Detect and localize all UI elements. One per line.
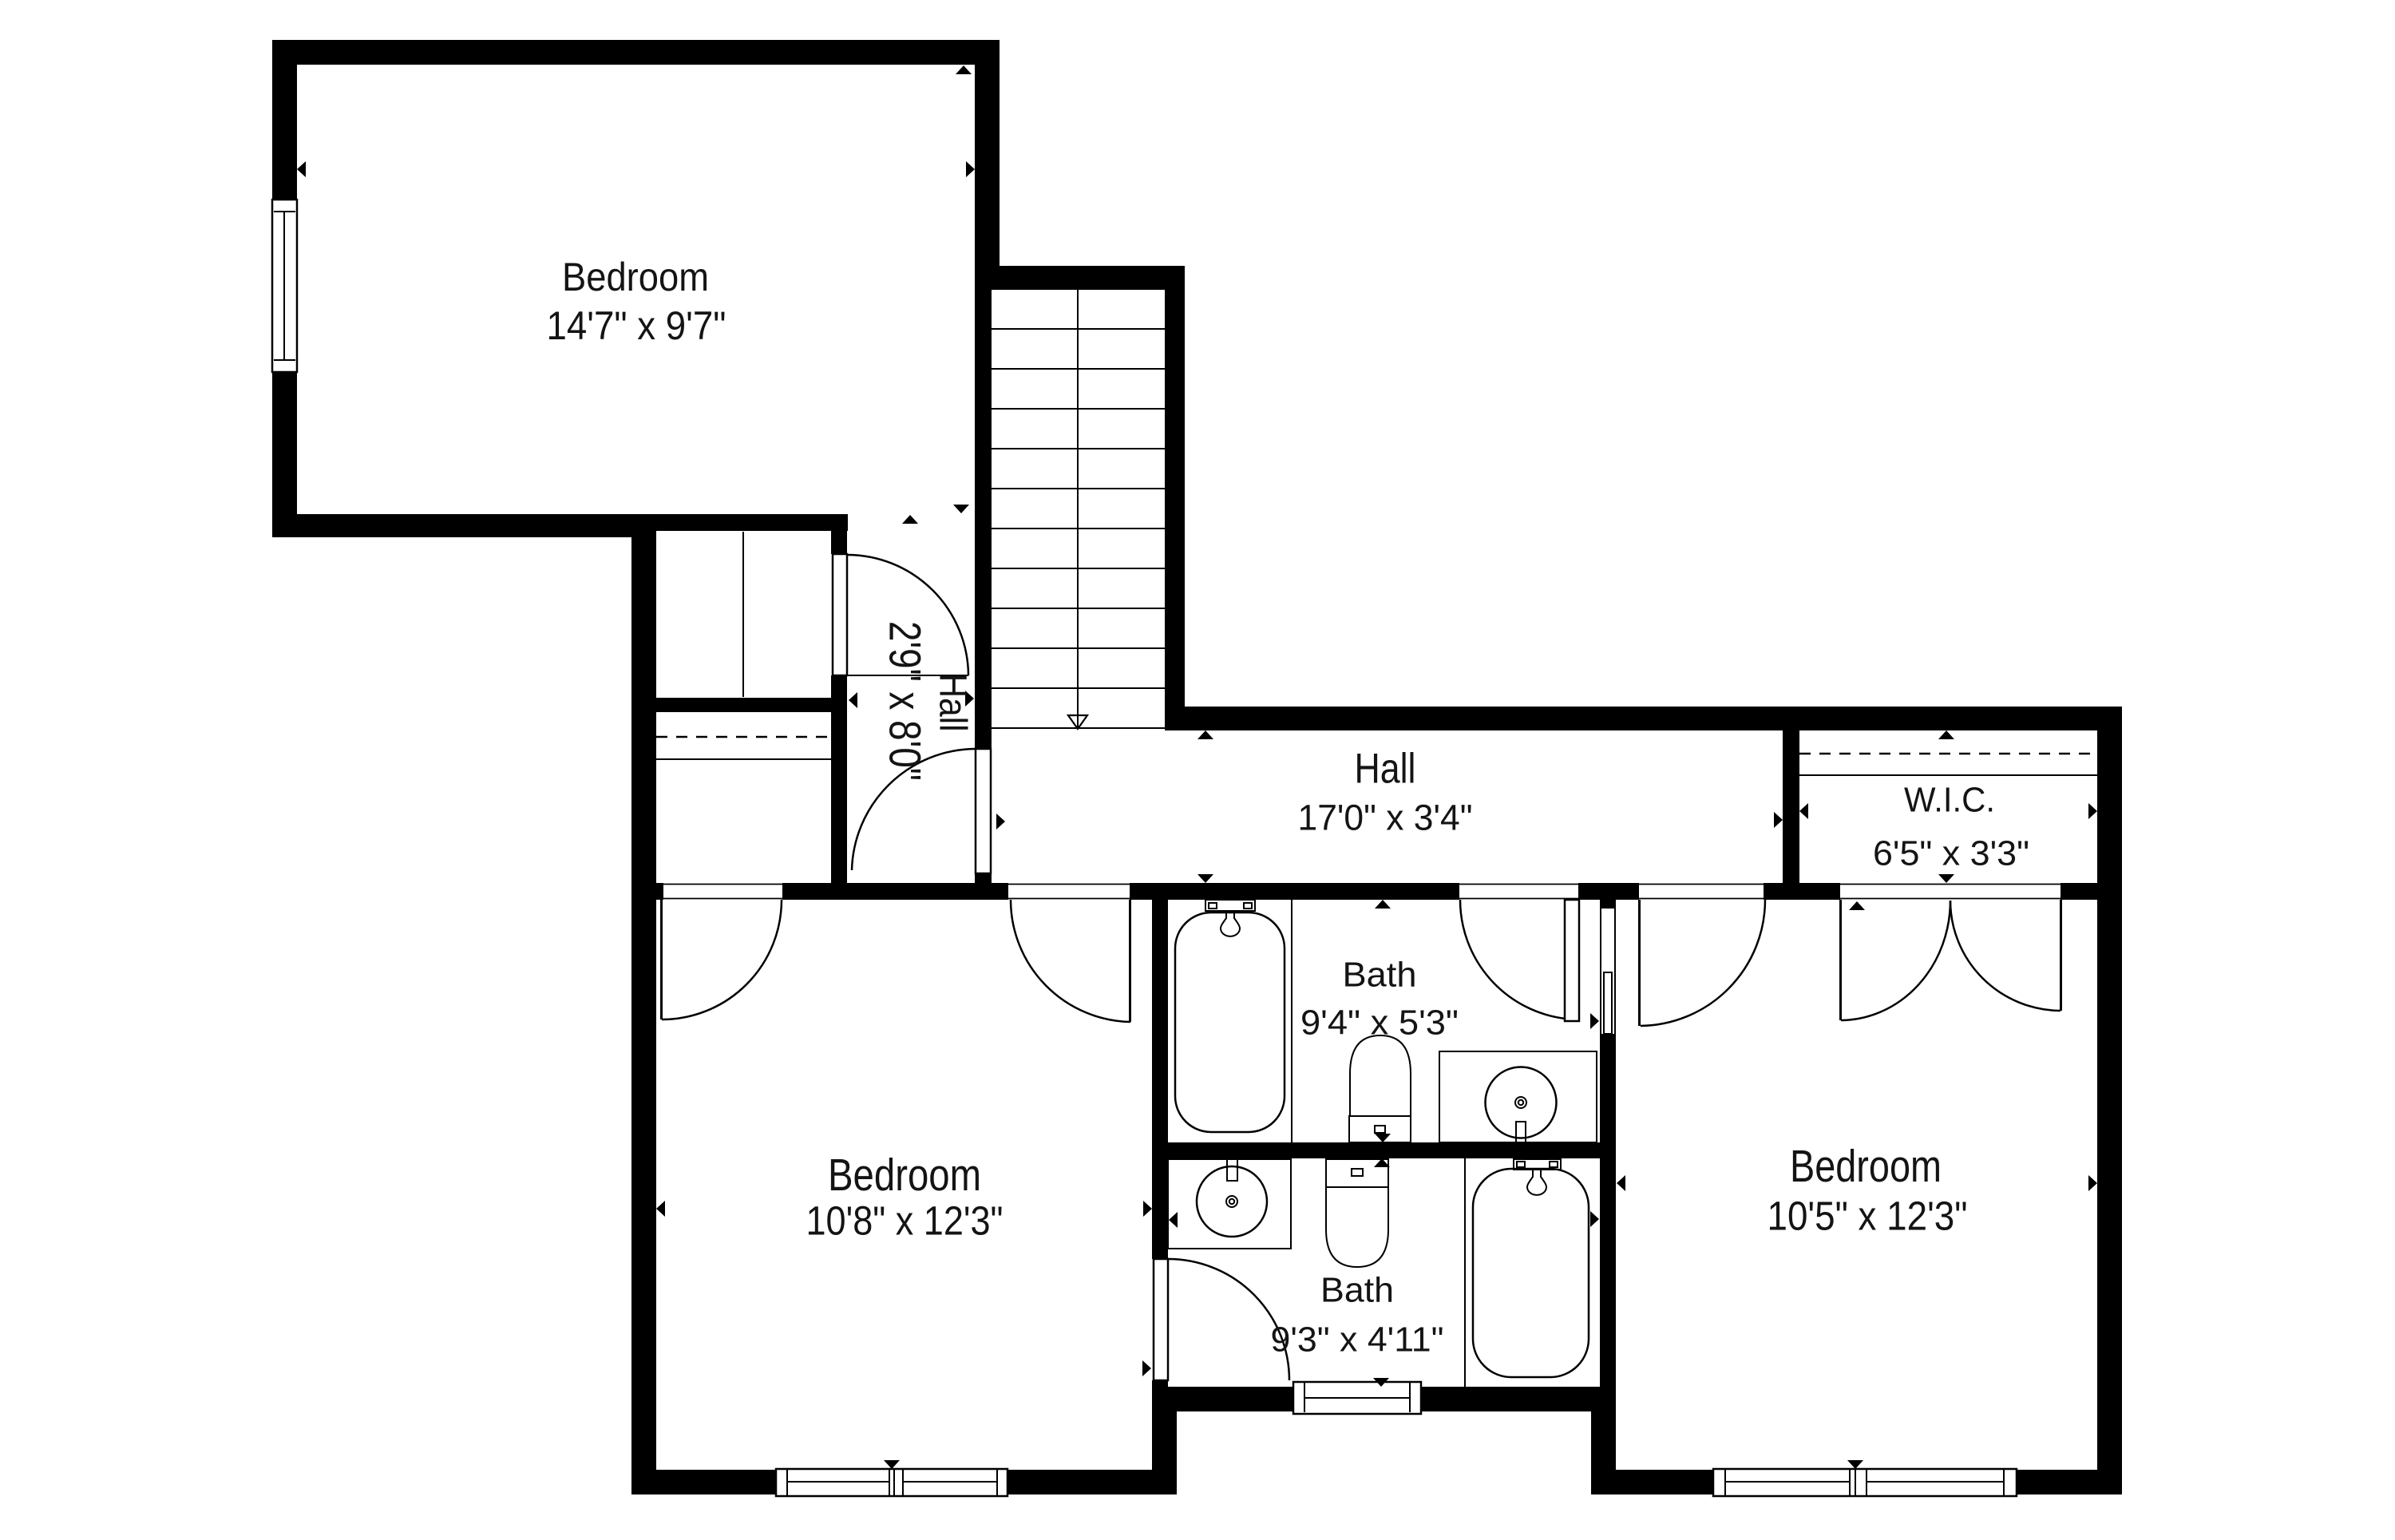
svg-text:Hall: Hall [1355,746,1416,793]
svg-text:17'0" x 3'4": 17'0" x 3'4" [1298,798,1473,838]
svg-text:10'5" x 12'3": 10'5" x 12'3" [1768,1194,1968,1239]
svg-text:Bath: Bath [1343,956,1417,995]
svg-text:Bedroom: Bedroom [828,1150,981,1201]
svg-text:9'4" x 5'3": 9'4" x 5'3" [1300,1004,1459,1043]
svg-text:Bedroom: Bedroom [562,255,709,299]
svg-text:Bedroom: Bedroom [1790,1141,1942,1192]
svg-text:9'3" x 4'11": 9'3" x 4'11" [1271,1320,1444,1360]
svg-text:2'9" x 8'0": 2'9" x 8'0" [881,621,931,781]
svg-text:6'5" x 3'3": 6'5" x 3'3" [1873,834,2029,873]
svg-text:10'8" x 12'3": 10'8" x 12'3" [806,1198,1004,1244]
svg-text:W.I.C.: W.I.C. [1904,781,1995,820]
svg-text:Bath: Bath [1320,1271,1394,1310]
svg-text:14'7" x 9'7": 14'7" x 9'7" [547,303,726,348]
svg-text:Hall: Hall [932,674,974,732]
